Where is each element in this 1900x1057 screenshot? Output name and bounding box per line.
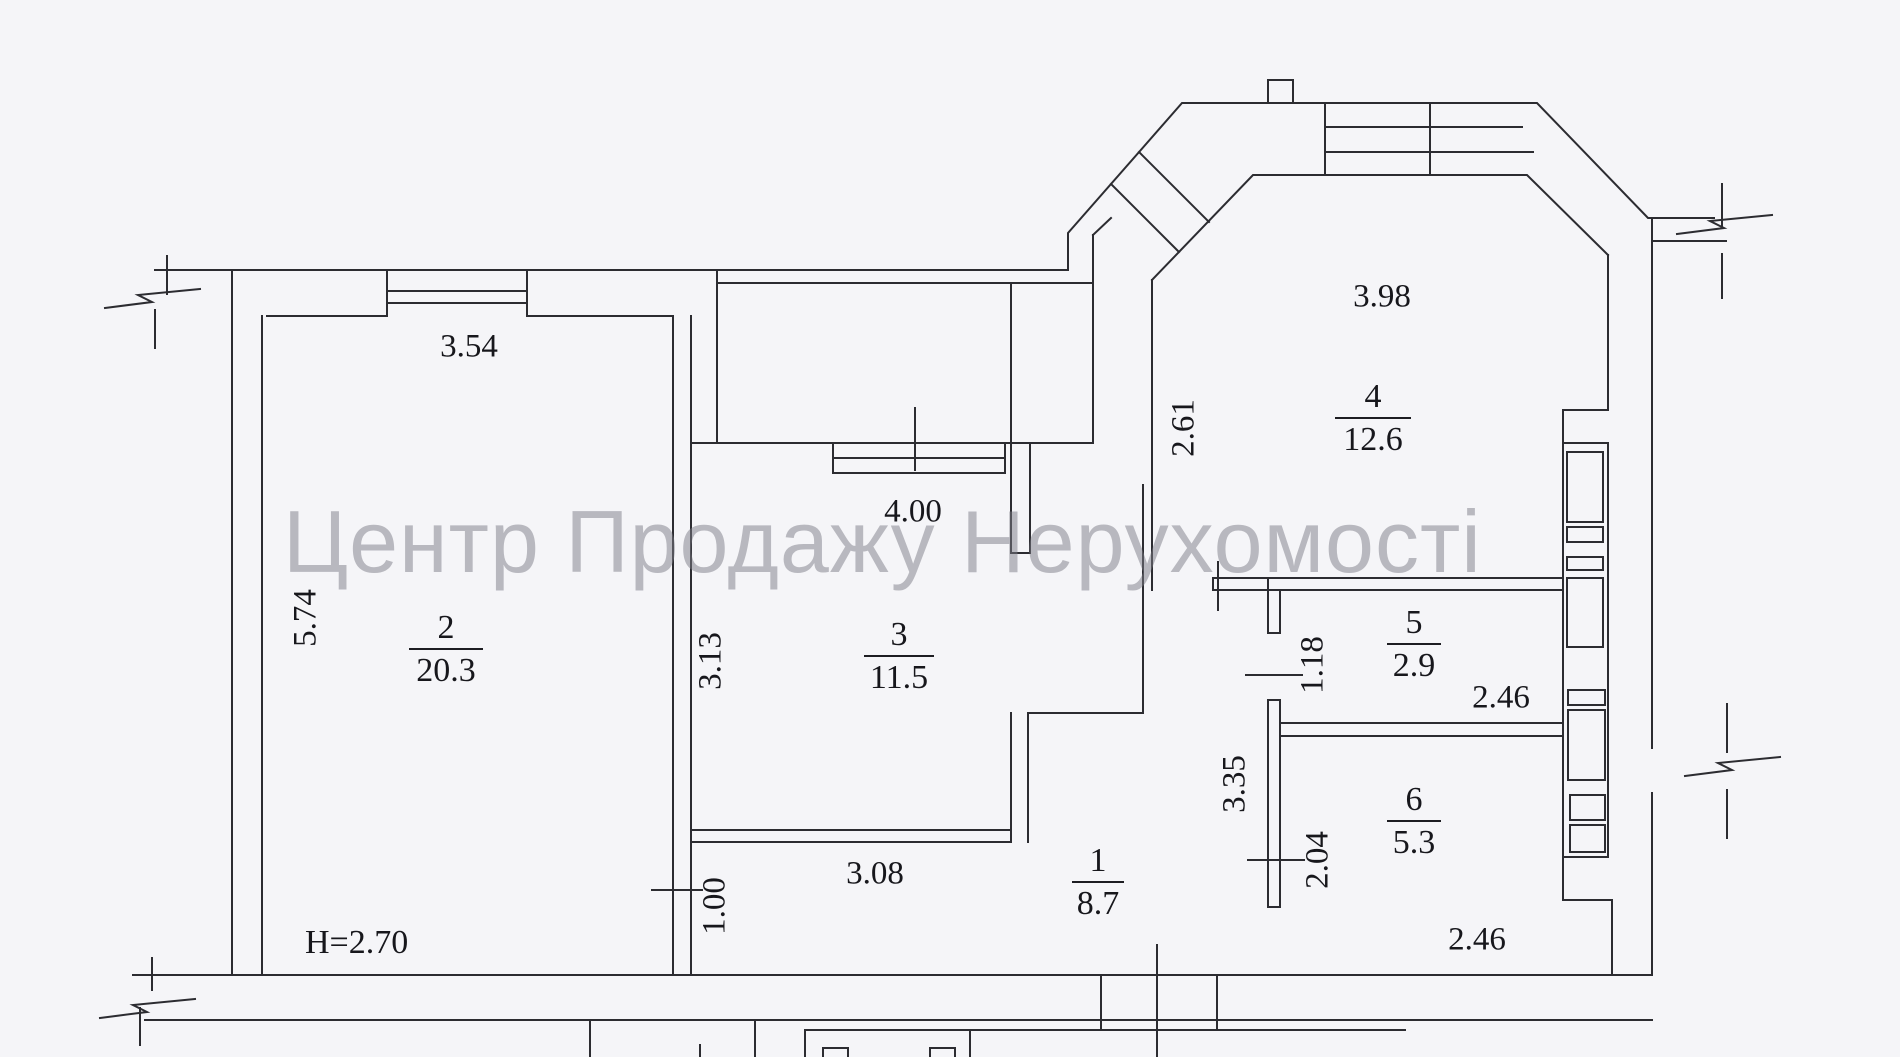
room-number: 2	[409, 611, 483, 648]
room-number: 3	[864, 618, 934, 655]
dimension-label: 2.04	[1300, 831, 1337, 889]
dimension-label: 1.18	[1295, 636, 1332, 694]
room-area: 12.6	[1335, 419, 1411, 457]
dimension-label: 3.35	[1217, 755, 1254, 813]
room-number: 5	[1387, 606, 1441, 643]
ceiling-height-label: H=2.70	[305, 924, 408, 962]
floorplan-scan-page: Центр Продажу Нерухомості 1 8.7 2 20.3 3…	[0, 0, 1900, 1057]
room-label-2: 2 20.3	[409, 611, 483, 688]
room-number: 1	[1072, 844, 1124, 881]
dimension-label: 5.74	[288, 589, 325, 647]
room-area: 2.9	[1387, 645, 1441, 683]
entrance-details	[590, 945, 1405, 1057]
room-area: 8.7	[1072, 883, 1124, 921]
dimension-label: 2.61	[1166, 399, 1203, 457]
break-marks	[100, 215, 1780, 1018]
room-label-6: 6 5.3	[1387, 783, 1441, 860]
watermark-text: Центр Продажу Нерухомості	[283, 498, 1482, 586]
dimension-label: 4.00	[884, 494, 942, 531]
dimension-label: 2.46	[1472, 680, 1530, 717]
room-label-5: 5 2.9	[1387, 606, 1441, 683]
dimension-label: 3.98	[1353, 279, 1411, 316]
room-label-4: 4 12.6	[1335, 380, 1411, 457]
room-area: 11.5	[864, 657, 934, 695]
dimension-label: 1.00	[697, 877, 734, 935]
dimension-label: 3.13	[693, 632, 730, 690]
room-number: 6	[1387, 783, 1441, 820]
room-label-1: 1 8.7	[1072, 844, 1124, 921]
dimension-label: 3.54	[440, 329, 498, 366]
room-area: 5.3	[1387, 822, 1441, 860]
dimension-ticks	[140, 184, 1727, 1045]
room-number: 4	[1335, 380, 1411, 417]
vent-shaft	[1563, 443, 1608, 857]
dimension-label: 3.08	[846, 856, 904, 893]
room-label-3: 3 11.5	[864, 618, 934, 695]
dimension-label: 2.46	[1448, 922, 1506, 959]
room-area: 20.3	[409, 650, 483, 688]
